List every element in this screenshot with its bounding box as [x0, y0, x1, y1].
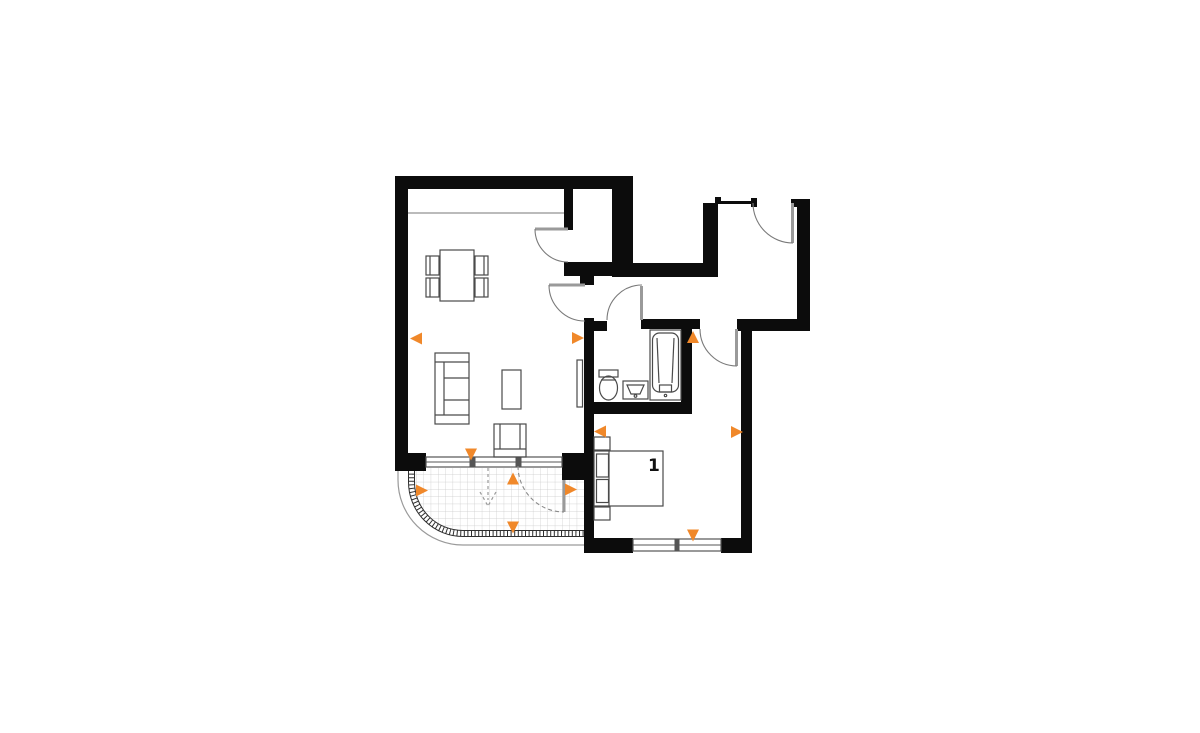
- bedroom-door: [700, 329, 737, 366]
- sofa: [435, 353, 469, 424]
- floor-plan-page: 1: [0, 0, 1200, 733]
- heating-marker-icon: [594, 426, 606, 438]
- wall-top: [395, 176, 633, 189]
- living-hall-door: [549, 285, 585, 321]
- wall-bedroom-bottom-right: [721, 538, 752, 553]
- wall-balcony-window-stub-left: [395, 453, 426, 471]
- nightstand: [594, 437, 610, 450]
- balcony: [398, 462, 584, 545]
- heating-marker-icon: [410, 333, 422, 345]
- dining-table: [440, 250, 474, 301]
- wall-balcony-window-stub-right: [562, 453, 594, 480]
- wall-corridor-bottom-a: [594, 321, 607, 331]
- wall-entry-right: [797, 199, 810, 331]
- coffee-table: [502, 370, 521, 409]
- dining-chair: [426, 278, 439, 297]
- dining-chair: [475, 278, 488, 297]
- bathroom-door: [607, 285, 642, 320]
- bathtub: [650, 330, 681, 400]
- balcony-window: [426, 457, 562, 467]
- wall-niche-left: [564, 189, 573, 230]
- entry-door: [753, 203, 793, 243]
- room-number-label: 1: [648, 456, 660, 476]
- wall-entry-top-thin: [718, 201, 751, 204]
- armchair: [494, 424, 526, 457]
- wall-shaft-right: [703, 203, 718, 277]
- niche-door: [535, 229, 568, 262]
- wall-living-bedroom-divider: [584, 318, 594, 553]
- wall-bath-right: [681, 319, 692, 414]
- washbasin: [623, 381, 648, 399]
- wall-bath-bottom: [584, 402, 692, 414]
- dining-chair: [426, 256, 439, 275]
- wall-bedroom-right: [741, 319, 752, 553]
- bedroom-window: [633, 539, 721, 551]
- dining-chair: [475, 256, 488, 275]
- wall-niche-bottom: [564, 262, 633, 276]
- heating-marker-icon: [572, 332, 584, 344]
- nightstand: [594, 507, 610, 520]
- floor-plan-drawing: 1: [0, 0, 1200, 733]
- balcony-tile-floor: [410, 468, 584, 533]
- radiator-panel: [577, 360, 583, 407]
- wall-hall-door-jamb: [580, 262, 594, 285]
- wall-bedroom-bottom-left: [584, 538, 633, 553]
- wall-entry-door-jamb: [751, 198, 757, 207]
- wall-left: [395, 176, 408, 471]
- dining-set: [426, 250, 488, 301]
- toilet: [599, 370, 618, 400]
